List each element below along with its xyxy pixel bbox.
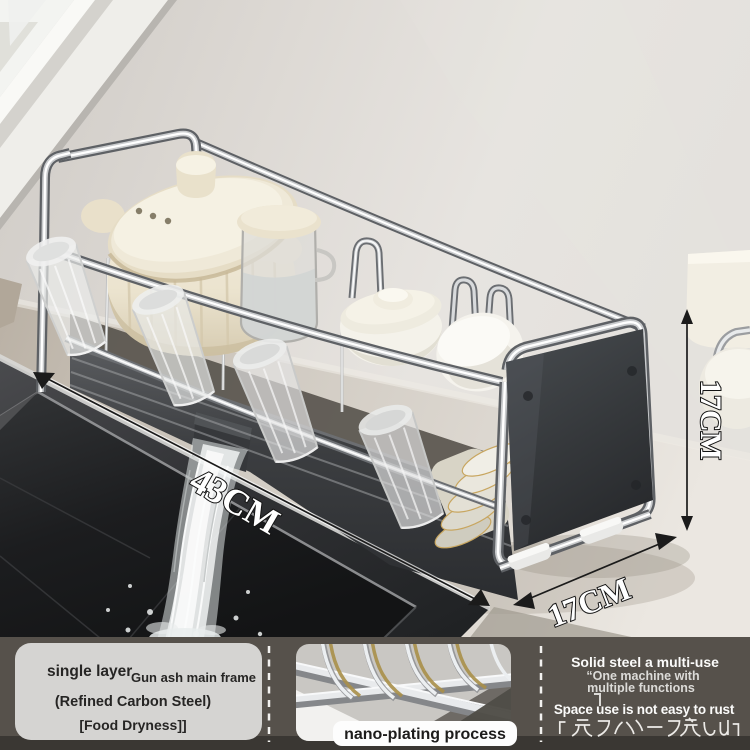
svg-text:(Refined Carbon Steel): (Refined Carbon Steel) — [55, 694, 211, 710]
svg-text:nano-plating process: nano-plating process — [344, 726, 506, 743]
svg-text:Space use is not easy to rust: Space use is not easy to rust — [554, 702, 735, 717]
svg-text:Solid steel a multi-use: Solid steel a multi-use — [571, 654, 719, 670]
svg-text:[Food Dryness]]: [Food Dryness]] — [79, 717, 186, 733]
svg-text:single layer: single layer — [47, 663, 132, 680]
svg-text:17CM: 17CM — [694, 380, 727, 460]
svg-text:multiple functions: multiple functions — [587, 681, 695, 695]
svg-text:Gun ash main frame: Gun ash main frame — [131, 670, 256, 685]
